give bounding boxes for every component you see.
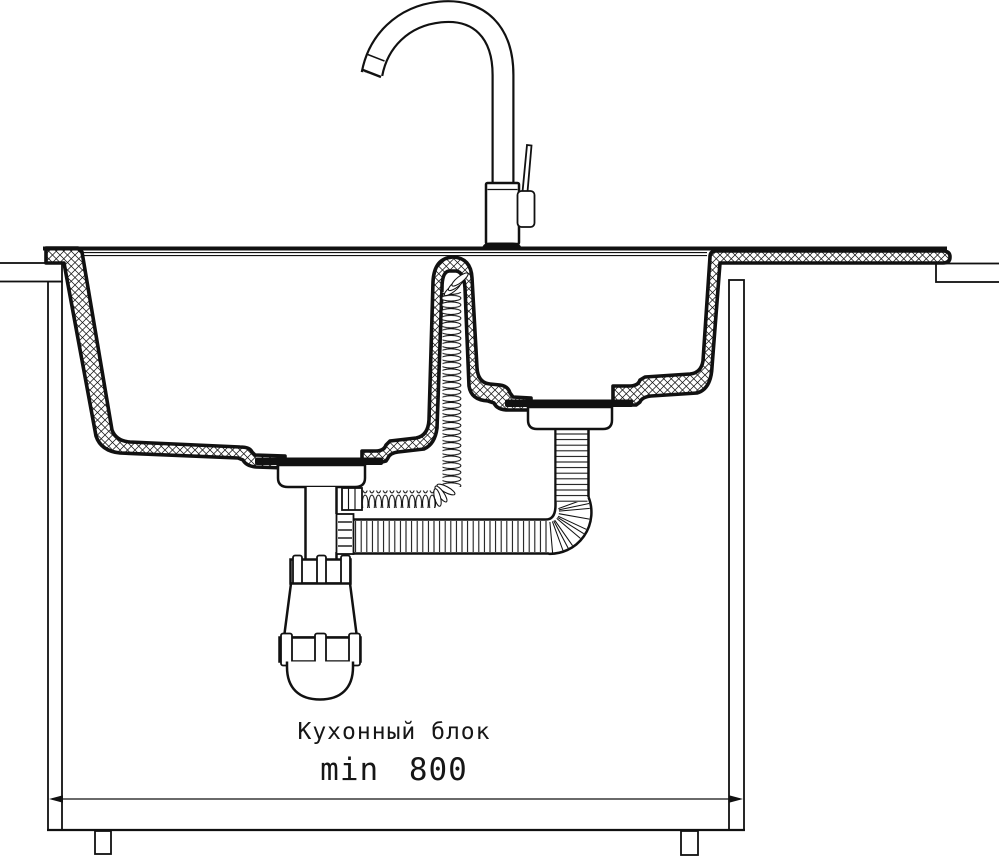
faucet-handle-base (518, 191, 535, 227)
horizontal-corrugated-pipe (353, 521, 548, 552)
branch-connector (337, 514, 354, 554)
cabinet-left-wall (48, 282, 62, 831)
diagram-canvas: Кухонный блок min 800 (0, 0, 999, 856)
cabinet-right-leg (681, 831, 698, 855)
vertical-corrugated-pipe (557, 429, 588, 502)
cabinet-right-wall (729, 280, 744, 830)
cabinet-left-leg (95, 831, 111, 854)
nut2-rib-left (281, 634, 292, 666)
right-drain-cup (528, 407, 612, 429)
nut2-rib-mid (315, 634, 326, 666)
faucet-body (486, 183, 519, 244)
coil-vertical-run (443, 292, 463, 487)
coil-horizontal-run (362, 491, 436, 509)
cabinet-label: Кухонный блок (297, 719, 490, 745)
nut2-rib-right (349, 634, 360, 666)
faucet-mount-flange (482, 243, 522, 249)
tailpipe-body (305, 487, 338, 560)
left-drain-cup (278, 465, 365, 487)
trap-bottom-cup (287, 662, 353, 700)
overflow-hose-nut (342, 488, 362, 510)
left-support-rail (0, 263, 62, 282)
trap-body (284, 584, 357, 638)
right-drain-flange (505, 400, 633, 408)
min-width-label: min 800 (320, 752, 468, 788)
right-support-rail (936, 264, 999, 283)
sink-installation-diagram: Кухонный блок min 800 (0, 0, 999, 856)
